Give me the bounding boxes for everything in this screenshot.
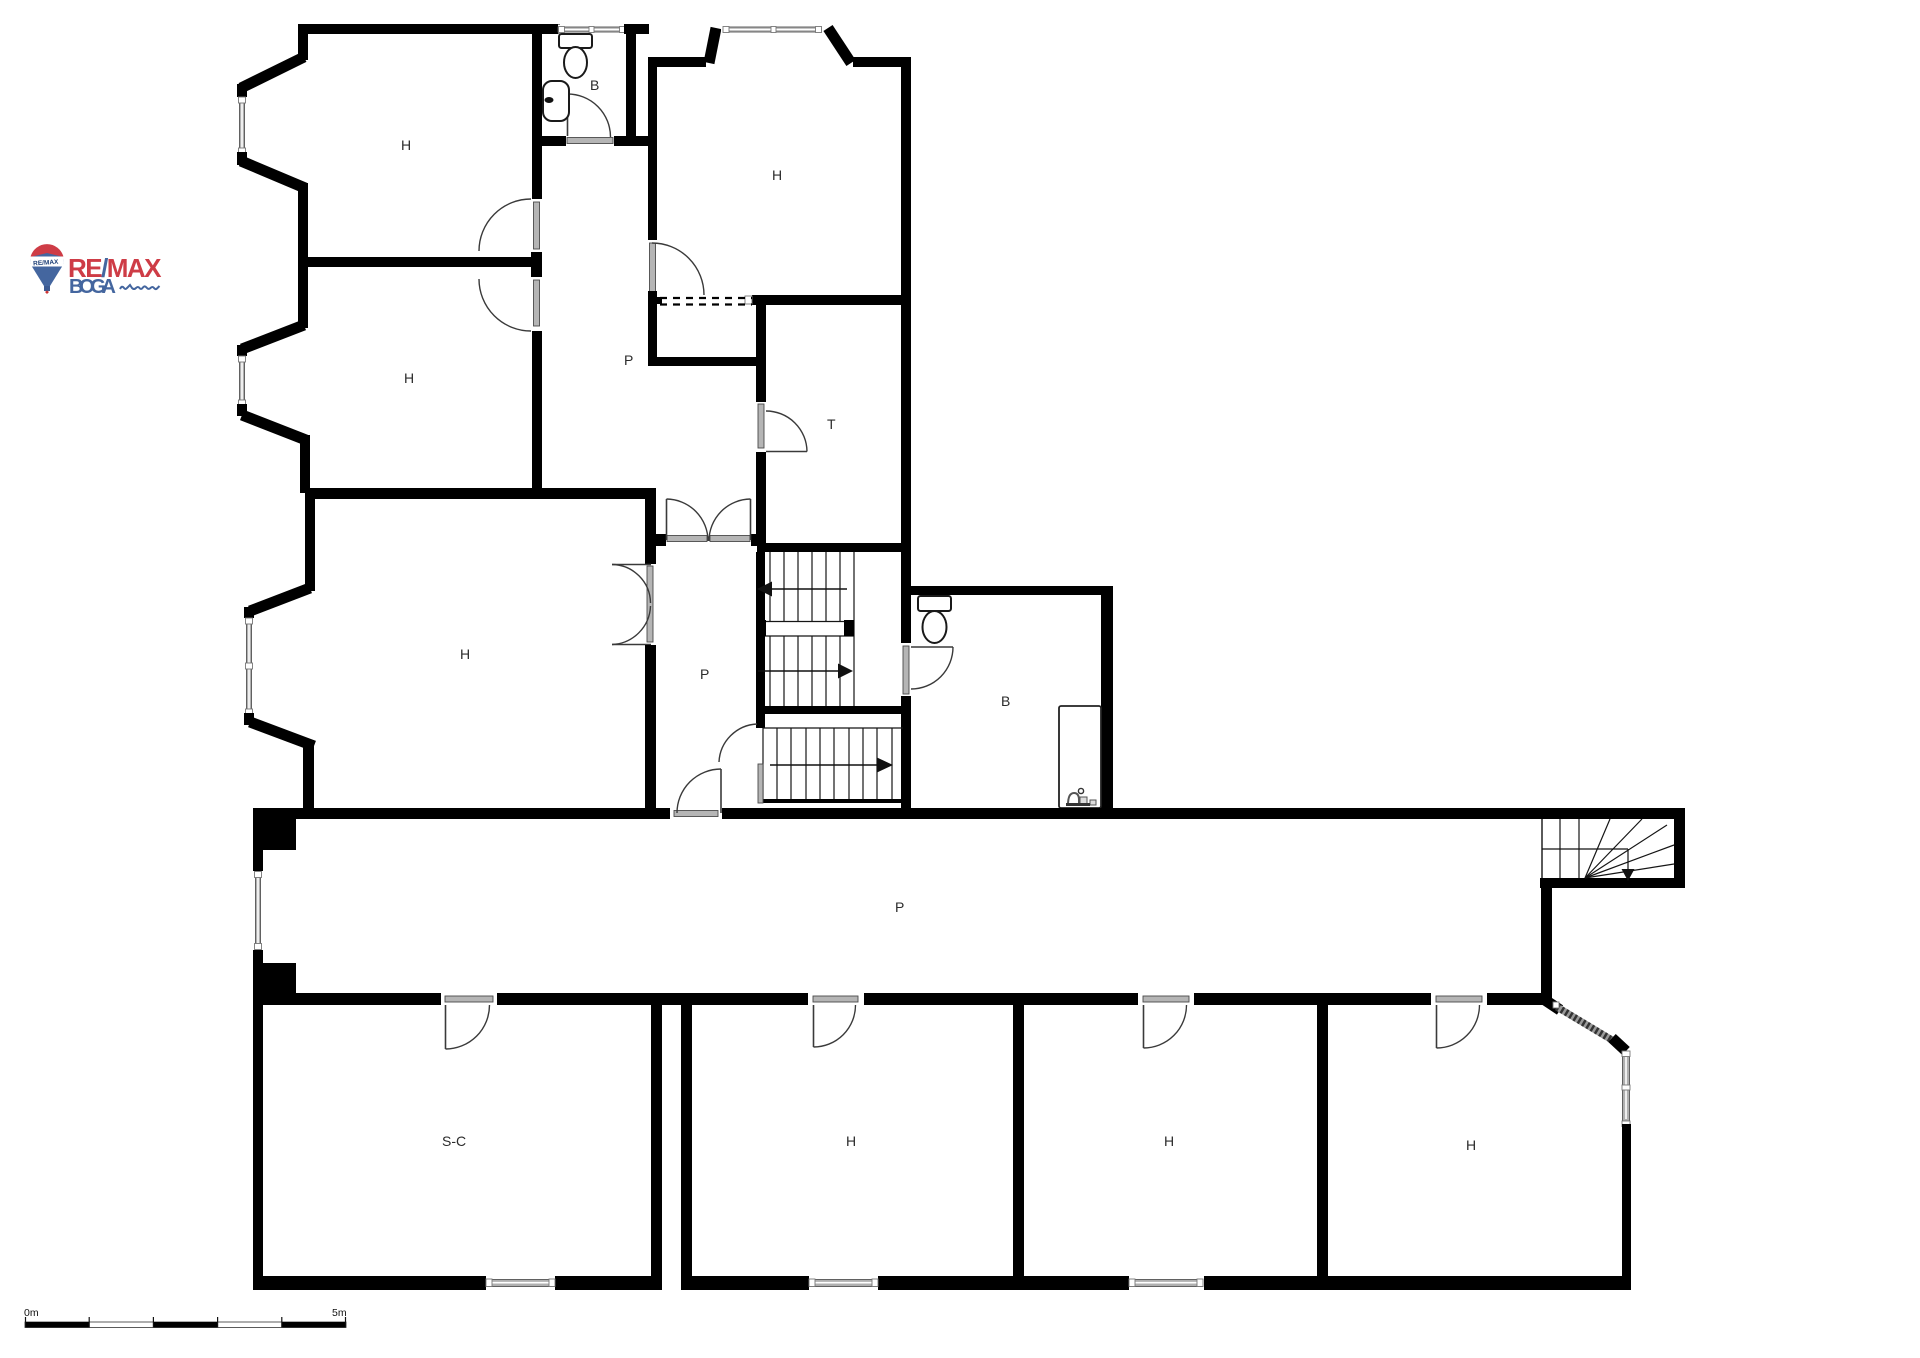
svg-text:P: P [895, 899, 904, 915]
svg-text:H: H [772, 167, 782, 183]
svg-text:H: H [1164, 1133, 1174, 1149]
svg-text:5m: 5m [332, 1307, 347, 1319]
svg-text:B: B [590, 77, 599, 93]
svg-text:H: H [460, 646, 470, 662]
svg-text:H: H [1466, 1137, 1476, 1153]
svg-text:T: T [827, 416, 836, 432]
svg-text:S-C: S-C [442, 1133, 466, 1149]
svg-text:H: H [401, 137, 411, 153]
svg-text:B: B [1001, 693, 1010, 709]
svg-text:BOGA: BOGA [69, 276, 116, 298]
svg-text:0m: 0m [24, 1307, 39, 1319]
svg-text:P: P [700, 666, 709, 682]
svg-text:H: H [404, 370, 414, 386]
svg-text:P: P [624, 352, 633, 368]
svg-text:H: H [846, 1133, 856, 1149]
